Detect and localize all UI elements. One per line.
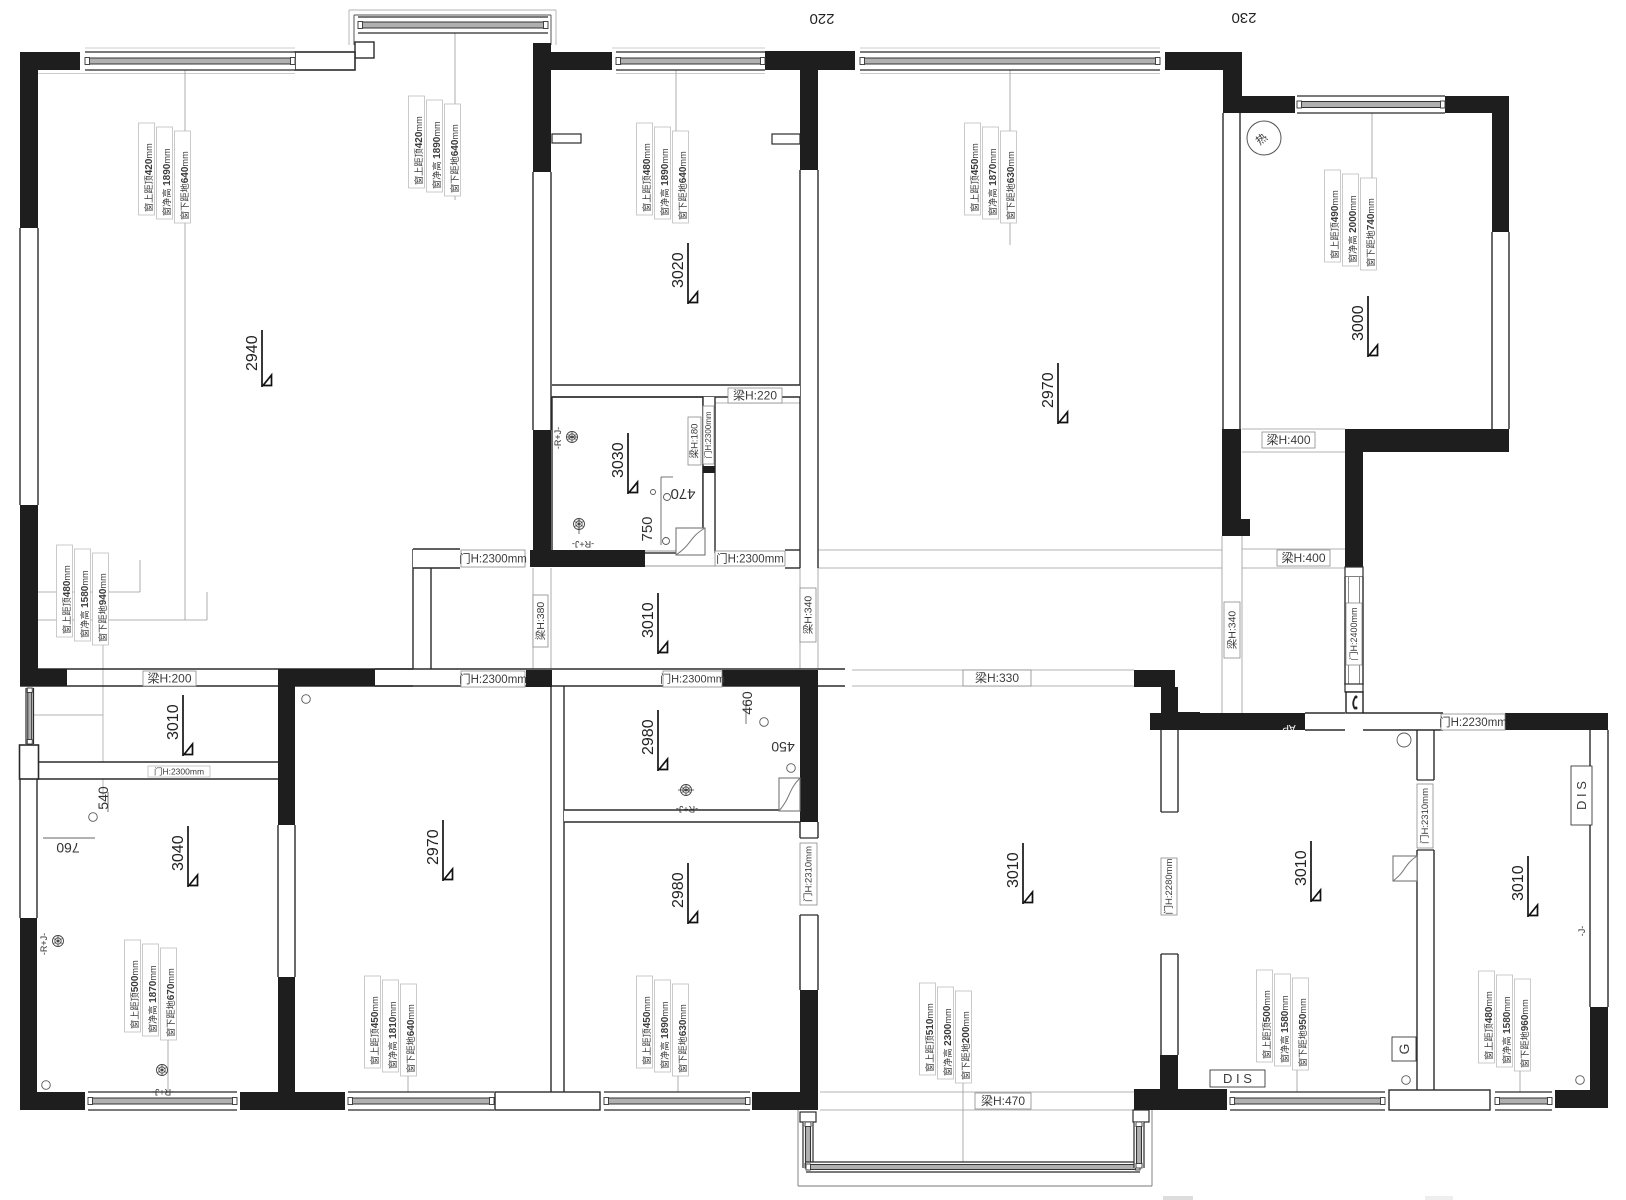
svg-text:窗下距地960mm: 窗下距地960mm xyxy=(1519,999,1531,1068)
svg-text:3020: 3020 xyxy=(670,252,687,288)
svg-text:-R+J-: -R+J- xyxy=(152,1087,174,1097)
svg-text:窗净高 1810mm: 窗净高 1810mm xyxy=(387,1001,399,1069)
svg-text:2980: 2980 xyxy=(640,719,657,755)
svg-text:窗净高 1580mm: 窗净高 1580mm xyxy=(1279,995,1291,1063)
svg-text:梁H:470: 梁H:470 xyxy=(981,1093,1025,1108)
svg-text:2970: 2970 xyxy=(425,829,442,865)
svg-text:门H:2310mm: 门H:2310mm xyxy=(803,846,815,902)
svg-text:-R+J-: -R+J- xyxy=(39,933,49,955)
svg-text:窗上距顶420mm: 窗上距顶420mm xyxy=(413,116,425,185)
svg-text:梁H:200: 梁H:200 xyxy=(147,671,191,686)
svg-text:窗净高 1580mm: 窗净高 1580mm xyxy=(1501,996,1513,1064)
svg-text:3010: 3010 xyxy=(1293,850,1310,886)
svg-text:窗上距顶450mm: 窗上距顶450mm xyxy=(369,996,381,1065)
svg-text:450: 450 xyxy=(771,739,795,755)
svg-text:窗净高 1870mm: 窗净高 1870mm xyxy=(147,965,159,1033)
svg-text:D I S: D I S xyxy=(1574,781,1589,810)
svg-text:门H:2300mm: 门H:2300mm xyxy=(459,672,527,686)
svg-text:窗下距地740mm: 窗下距地740mm xyxy=(1365,198,1377,267)
svg-text:窗上距顶450mm: 窗上距顶450mm xyxy=(969,143,981,212)
svg-text:门H:2300mm: 门H:2300mm xyxy=(716,551,784,565)
svg-text:窗上距顶420mm: 窗上距顶420mm xyxy=(143,143,155,212)
svg-text:窗下距地640mm: 窗下距地640mm xyxy=(449,124,461,193)
svg-text:-R+J-: -R+J- xyxy=(676,804,698,814)
svg-text:梁H:330: 梁H:330 xyxy=(975,670,1019,685)
svg-text:3010: 3010 xyxy=(640,602,657,638)
svg-text:门H:2300mm: 门H:2300mm xyxy=(660,672,725,686)
svg-text:门H:2400mm: 门H:2400mm xyxy=(1348,607,1359,660)
svg-text:窗下距地640mm: 窗下距地640mm xyxy=(179,151,191,220)
svg-text:窗净高 1890mm: 窗净高 1890mm xyxy=(161,148,173,216)
svg-text:窗净高 1580mm: 窗净高 1580mm xyxy=(79,570,91,638)
svg-text:540: 540 xyxy=(95,786,111,810)
svg-text:门H:2310mm: 门H:2310mm xyxy=(1419,788,1431,844)
svg-text:-R+J-: -R+J- xyxy=(553,427,563,449)
svg-text:470: 470 xyxy=(670,485,695,502)
svg-text:窗上距顶490mm: 窗上距顶490mm xyxy=(1329,190,1341,259)
svg-text:窗下距地630mm: 窗下距地630mm xyxy=(677,1004,689,1073)
svg-text:梁H:340: 梁H:340 xyxy=(1226,611,1239,650)
svg-text:G: G xyxy=(1396,1044,1412,1055)
svg-text:窗下距地640mm: 窗下距地640mm xyxy=(677,151,689,220)
svg-text:窗上距顶500mm: 窗上距顶500mm xyxy=(129,960,141,1029)
svg-text:窗上距顶450mm: 窗上距顶450mm xyxy=(641,996,653,1065)
svg-text:3030: 3030 xyxy=(610,442,627,478)
svg-text:梁H:380: 梁H:380 xyxy=(534,602,547,641)
svg-text:D I S: D I S xyxy=(1223,1071,1252,1086)
svg-text:750: 750 xyxy=(639,516,656,541)
svg-text:2980: 2980 xyxy=(670,872,687,908)
svg-text:3010: 3010 xyxy=(1510,865,1527,901)
svg-text:梁H:400: 梁H:400 xyxy=(1281,550,1325,565)
svg-text:220: 220 xyxy=(809,10,834,27)
svg-text:窗净高 2000mm: 窗净高 2000mm xyxy=(1347,195,1359,263)
svg-text:窗下距地640mm: 窗下距地640mm xyxy=(405,1004,417,1073)
svg-text:2970: 2970 xyxy=(1040,372,1057,408)
svg-text:门H:2280mm: 门H:2280mm xyxy=(1163,858,1175,914)
svg-text:2940: 2940 xyxy=(244,335,261,371)
svg-text:窗下距地940mm: 窗下距地940mm xyxy=(97,573,109,642)
svg-text:3010: 3010 xyxy=(1005,852,1022,888)
svg-text:窗净高 1870mm: 窗净高 1870mm xyxy=(987,148,999,216)
svg-text:门H:2300mm: 门H:2300mm xyxy=(703,411,713,458)
svg-text:窗净高 1890mm: 窗净高 1890mm xyxy=(659,148,671,216)
svg-text:3010: 3010 xyxy=(165,704,182,740)
svg-text:窗上距顶480mm: 窗上距顶480mm xyxy=(641,143,653,212)
svg-text:梁H:180: 梁H:180 xyxy=(689,424,701,459)
svg-text:窗净高 2300mm: 窗净高 2300mm xyxy=(942,1008,954,1076)
svg-text:窗上距顶480mm: 窗上距顶480mm xyxy=(61,565,73,634)
svg-text:3040: 3040 xyxy=(170,835,187,871)
svg-text:门H:2230mm: 门H:2230mm xyxy=(1439,715,1507,729)
svg-text:760: 760 xyxy=(56,840,80,856)
svg-text:梁H:400: 梁H:400 xyxy=(1266,432,1310,447)
svg-text:230: 230 xyxy=(1231,9,1256,26)
svg-text:窗下距地670mm: 窗下距地670mm xyxy=(165,968,177,1037)
svg-text:门H:2300mm: 门H:2300mm xyxy=(459,551,527,565)
svg-text:门H:2300mm: 门H:2300mm xyxy=(154,766,204,776)
svg-text:窗上距顶510mm: 窗上距顶510mm xyxy=(924,1003,936,1072)
svg-text:梁H:220: 梁H:220 xyxy=(733,388,777,403)
svg-text:460: 460 xyxy=(739,691,755,715)
svg-text:-R+J-: -R+J- xyxy=(572,539,594,549)
svg-text:3000: 3000 xyxy=(1350,305,1367,341)
svg-text:窗净高 1890mm: 窗净高 1890mm xyxy=(431,121,443,189)
svg-text:窗净高 1890mm: 窗净高 1890mm xyxy=(659,1001,671,1069)
svg-text:-J-: -J- xyxy=(1577,926,1587,937)
svg-text:窗下距地950mm: 窗下距地950mm xyxy=(1297,998,1309,1067)
svg-text:AP: AP xyxy=(1282,722,1296,733)
svg-text:梁H:340: 梁H:340 xyxy=(802,596,815,635)
svg-text:窗上距顶480mm: 窗上距顶480mm xyxy=(1483,991,1495,1060)
svg-text:窗上距顶500mm: 窗上距顶500mm xyxy=(1261,990,1273,1059)
svg-text:窗下距地630mm: 窗下距地630mm xyxy=(1005,151,1017,220)
svg-text:窗下距地200mm: 窗下距地200mm xyxy=(960,1011,972,1080)
